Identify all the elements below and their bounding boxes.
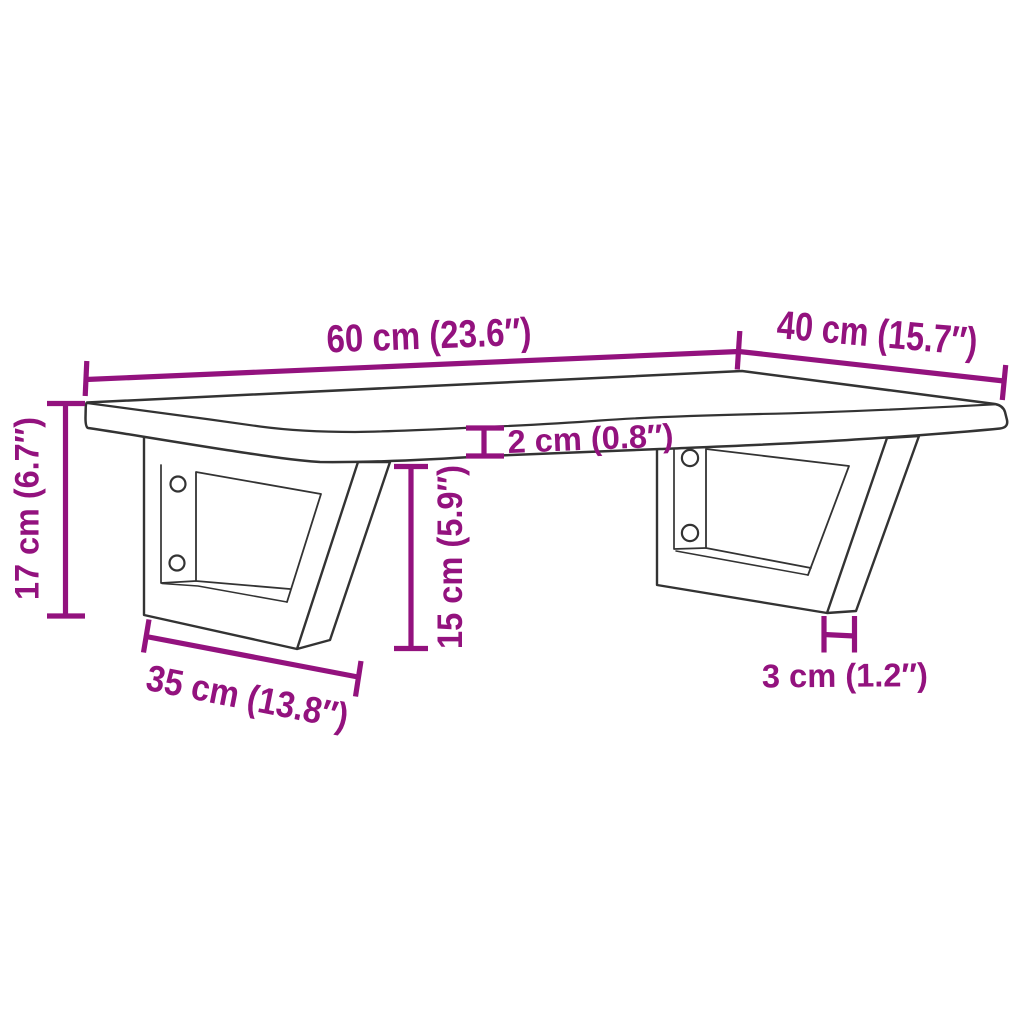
svg-text:60 cm (23.6″): 60 cm (23.6″) bbox=[326, 311, 532, 362]
svg-text:15 cm (5.9″): 15 cm (5.9″) bbox=[431, 465, 470, 649]
svg-text:17 cm (6.7″): 17 cm (6.7″) bbox=[9, 417, 47, 600]
svg-text:3 cm (1.2″): 3 cm (1.2″) bbox=[762, 656, 928, 694]
svg-text:2 cm (0.8″): 2 cm (0.8″) bbox=[507, 417, 674, 460]
